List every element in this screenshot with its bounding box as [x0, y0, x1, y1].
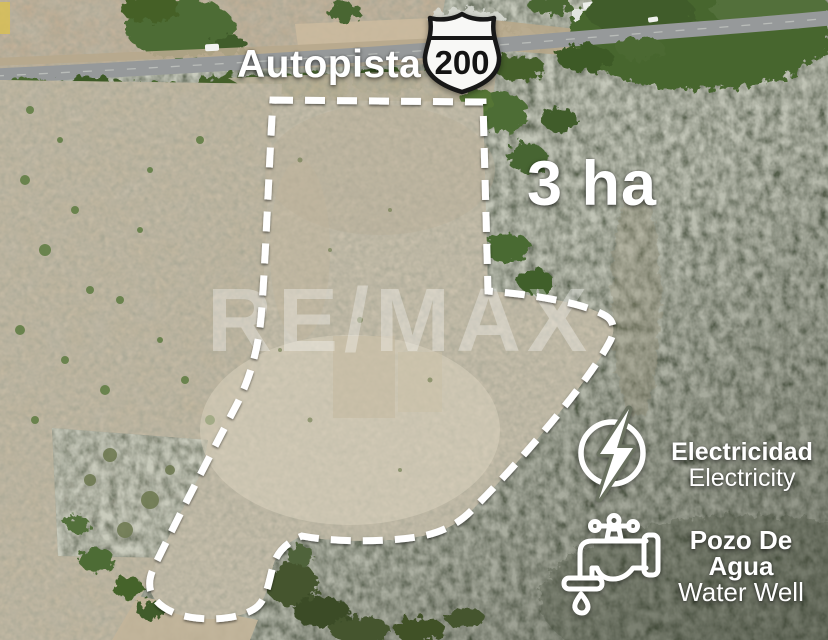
area-label: 3 ha — [527, 153, 657, 216]
electricity-feature: Electricidad Electricity — [658, 439, 826, 491]
water-faucet-icon — [556, 506, 672, 618]
water-well-label-en: Water Well — [660, 579, 822, 606]
electricity-label-es: Electricidad — [658, 439, 826, 465]
water-well-label-es-2: Agua — [660, 553, 822, 579]
electricity-label-en: Electricity — [658, 465, 826, 491]
aerial-property-photo: RE/MAX Autopista 200 3 ha Electricidad E… — [0, 0, 828, 640]
water-well-label-es-1: Pozo De — [660, 527, 822, 553]
water-well-feature: Pozo De Agua Water Well — [660, 527, 822, 606]
route-shield-number: 200 — [434, 44, 489, 81]
lightning-bolt-circle-icon — [574, 403, 652, 505]
road-label: Autopista — [237, 45, 421, 84]
route-200-shield-icon: 200 — [420, 10, 504, 96]
